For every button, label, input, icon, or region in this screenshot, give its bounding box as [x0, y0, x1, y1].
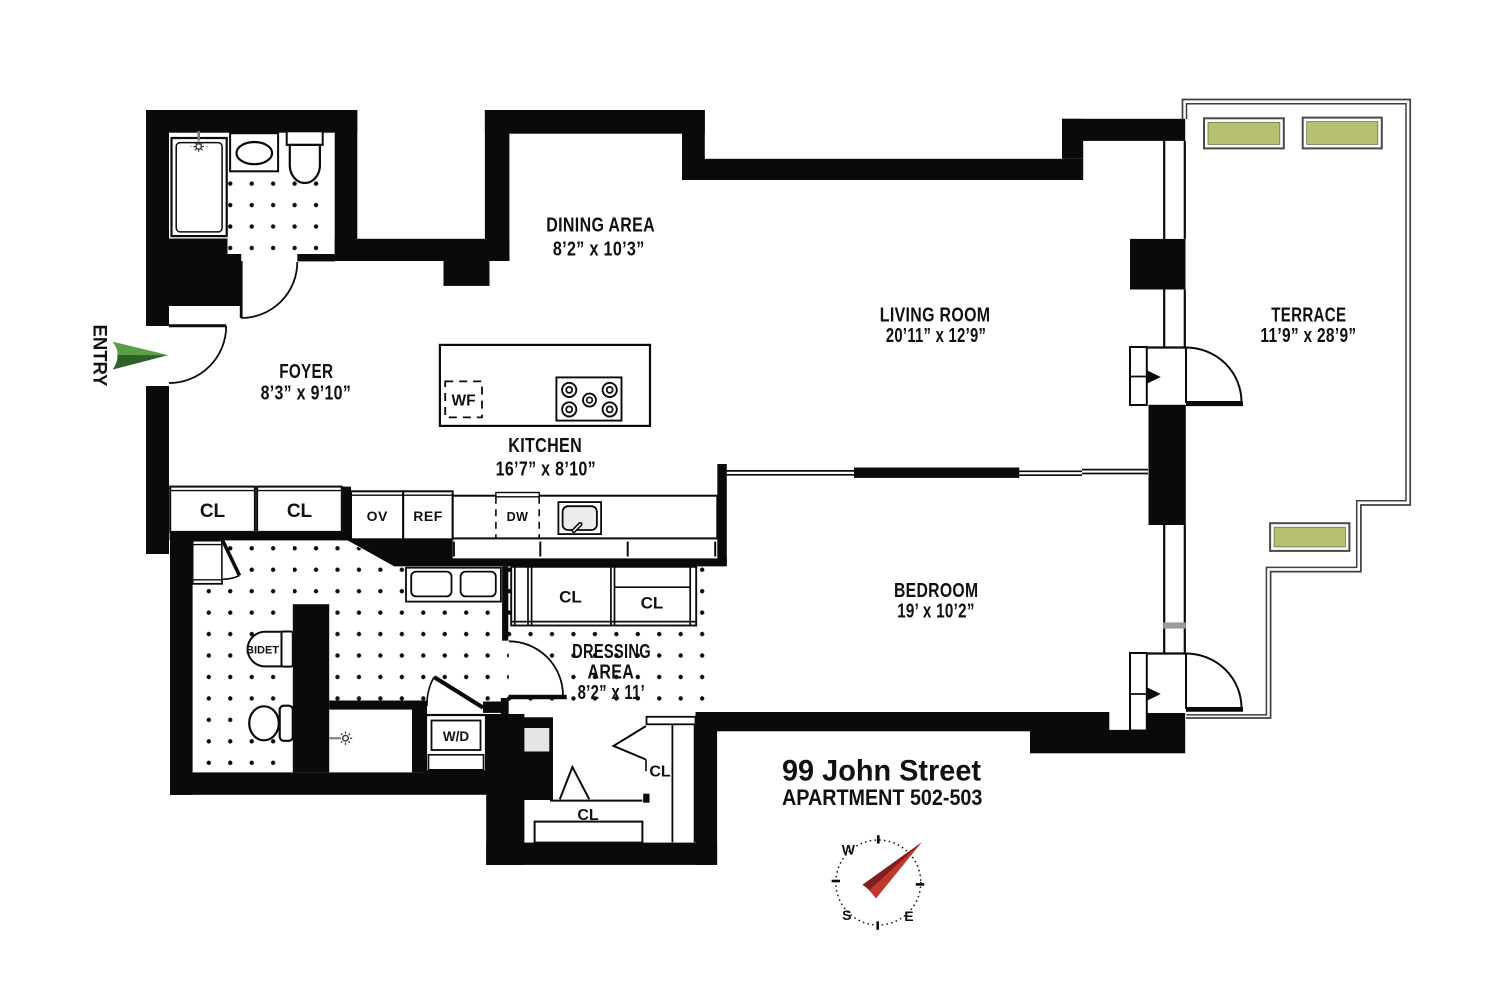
- svg-text:8’3” x 9’10”: 8’3” x 9’10”: [261, 382, 352, 404]
- svg-text:8’2” x 10’3”: 8’2” x 10’3”: [553, 238, 645, 260]
- svg-text:W/D: W/D: [443, 729, 469, 744]
- svg-text:CL: CL: [641, 594, 664, 613]
- svg-text:TERRACE: TERRACE: [1271, 304, 1346, 326]
- svg-text:W: W: [842, 842, 856, 858]
- svg-text:DINING AREA: DINING AREA: [546, 215, 655, 237]
- svg-text:ENTRY: ENTRY: [89, 325, 110, 387]
- svg-text:99 John Street: 99 John Street: [782, 755, 981, 788]
- svg-text:OV: OV: [367, 508, 388, 524]
- svg-text:16’7” x 8’10”: 16’7” x 8’10”: [496, 459, 596, 481]
- svg-text:S: S: [842, 907, 851, 923]
- svg-text:20’11” x 12’9”: 20’11” x 12’9”: [886, 325, 986, 347]
- svg-text:DW: DW: [507, 510, 529, 524]
- svg-text:KITCHEN: KITCHEN: [508, 435, 582, 457]
- svg-text:REF: REF: [413, 508, 443, 524]
- svg-text:CL: CL: [200, 501, 226, 522]
- svg-text:CL: CL: [649, 764, 671, 781]
- svg-text:FOYER: FOYER: [279, 361, 333, 383]
- svg-text:BIDET: BIDET: [246, 645, 279, 657]
- svg-text:AREA: AREA: [588, 662, 635, 684]
- svg-text:E: E: [904, 908, 913, 924]
- svg-text:BEDROOM: BEDROOM: [894, 580, 978, 602]
- svg-text:11’9” x 28’9”: 11’9” x 28’9”: [1260, 325, 1356, 347]
- svg-text:APARTMENT 502-503: APARTMENT 502-503: [782, 785, 982, 810]
- svg-text:LIVING ROOM: LIVING ROOM: [880, 305, 991, 327]
- svg-text:CL: CL: [287, 501, 313, 522]
- svg-text:CL: CL: [559, 588, 582, 607]
- svg-text:19’ x 10’2”: 19’ x 10’2”: [897, 601, 975, 623]
- svg-text:WF: WF: [452, 393, 476, 410]
- svg-text:DRESSING: DRESSING: [572, 641, 651, 663]
- svg-text:CL: CL: [577, 807, 599, 824]
- svg-text:8’2” x 11’: 8’2” x 11’: [578, 682, 646, 704]
